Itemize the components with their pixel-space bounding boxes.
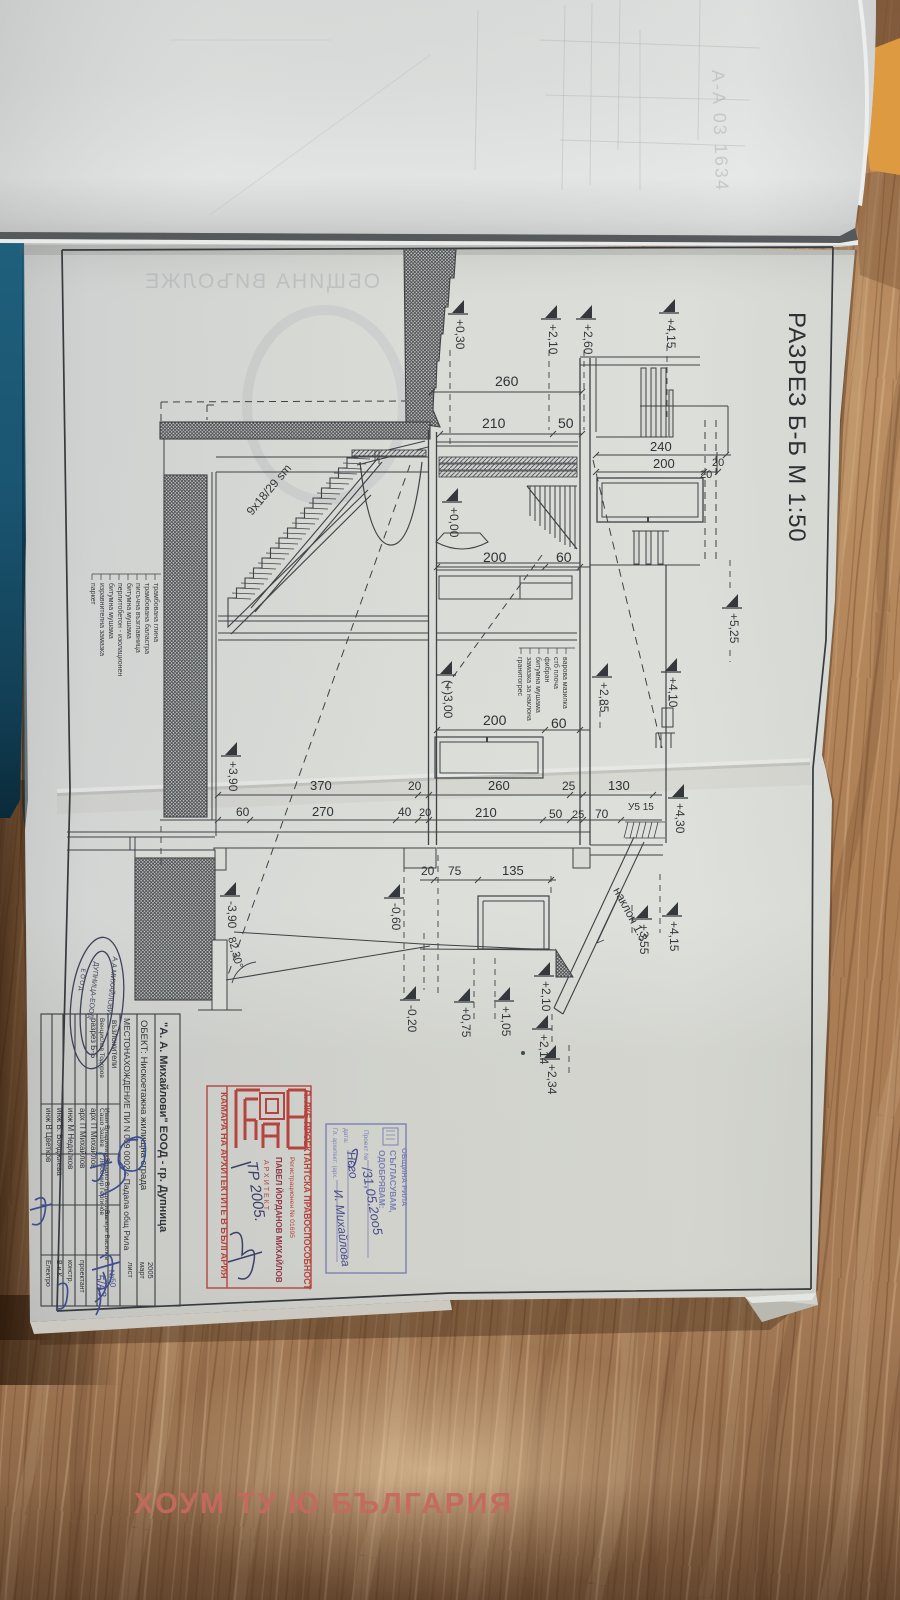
svg-text:Нєго: Нєго (344, 1151, 361, 1180)
svg-text:№50: №50 (107, 1269, 118, 1288)
svg-text:+2,14: +2,14 (537, 1034, 551, 1065)
svg-text:+2,34: +2,34 (545, 1064, 559, 1095)
svg-text:210: 210 (475, 805, 497, 820)
svg-text:+2,10: +2,10 (539, 981, 553, 1012)
svg-text:+2,10: +2,10 (546, 324, 560, 355)
svg-text:А-А 03 1634: А-А 03 1634 (708, 69, 732, 192)
svg-text:ОБЩИНА РИЛА: ОБЩИНА РИЛА (400, 1148, 409, 1207)
svg-text:50: 50 (549, 807, 563, 821)
svg-text:210: 210 (482, 415, 506, 431)
svg-text:лист: лист (126, 1262, 135, 1278)
svg-text:СЪГЛАСУВАМ,: СЪГЛАСУВАМ, (388, 1150, 398, 1213)
svg-text:20: 20 (408, 779, 422, 793)
svg-text:Електро: Електро (44, 1260, 51, 1287)
svg-text:писъчна възглавница: писъчна възглавница (134, 583, 141, 653)
svg-text:"А. А. Михайлови" ЕООД - гр. Д: "А. А. Михайлови" ЕООД - гр. Дупница (157, 1022, 169, 1233)
svg-text:+0,75: +0,75 (459, 1007, 473, 1038)
svg-text:РАЗРЕЗ Б-Б М 1:50: РАЗРЕЗ Б-Б М 1:50 (783, 312, 810, 542)
svg-text:ОБЩИНА ВИЪОЛЖЕ: ОБЩИНА ВИЪОЛЖЕ (143, 270, 380, 293)
svg-text:У5 15: У5 15 (628, 802, 654, 813)
svg-text:50: 50 (558, 415, 574, 431)
svg-text:перлитобетон - изолационен: перлитобетон - изолационен (116, 583, 124, 676)
svg-text:200: 200 (483, 712, 507, 728)
svg-text:гранитогрес: гранитогрес (516, 657, 523, 696)
svg-text:замазка за наклона: замазка за наклона (525, 657, 532, 721)
svg-text:МЕСТОНАХОЖДЕНИЕ ПИ N 009 000: МЕСТОНАХОЖДЕНИЕ ПИ N 009 0002 с Падала о… (122, 1018, 132, 1251)
svg-text:2005: 2005 (146, 1262, 155, 1279)
svg-text:+0,30: +0,30 (453, 319, 467, 350)
svg-text:+5,25: +5,25 (727, 613, 741, 644)
svg-text:130: 130 (608, 778, 630, 793)
svg-text:-0,20: -0,20 (405, 1005, 419, 1033)
svg-text:ПАВЕЛ ЙОРДАНОВ МИХАЙЛОВ: ПАВЕЛ ЙОРДАНОВ МИХАЙЛОВ (274, 1157, 283, 1283)
svg-text:20: 20 (712, 457, 724, 469)
svg-text:+2,60: +2,60 (581, 324, 595, 355)
svg-text:135: 135 (502, 863, 524, 878)
svg-text:25: 25 (562, 779, 576, 793)
svg-text:+4,15: +4,15 (664, 318, 678, 349)
svg-text:+2,85: +2,85 (597, 682, 611, 713)
svg-text:200: 200 (653, 456, 675, 471)
svg-text:+3,90: +3,90 (226, 761, 240, 792)
svg-text:арх П Михайлов: арх П Михайлов (78, 1108, 87, 1168)
svg-text:20: 20 (419, 807, 431, 819)
svg-text:трамбована глина: трамбована глина (152, 583, 160, 642)
svg-text:Проект №: Проект № (362, 1130, 369, 1160)
svg-text:Валери Василев: Валери Василев (103, 1210, 110, 1261)
svg-text:изравнителна замазка: изравнителна замазка (98, 583, 105, 656)
svg-text:40: 40 (398, 805, 412, 819)
svg-text:стб плоча: стб плоча (552, 657, 560, 689)
svg-text:битумна мушама: битумна мушама (534, 657, 542, 713)
svg-text:Гл. архитект: (арх.: Гл. архитект: (арх. (331, 1128, 337, 1179)
svg-text:Регистрационен № 01695: Регистрационен № 01695 (288, 1157, 295, 1238)
svg-text:+4,10: +4,10 (666, 677, 680, 708)
svg-text:25: 25 (572, 809, 584, 821)
svg-text:(+)3,00: (+)3,00 (441, 680, 455, 719)
svg-text:60: 60 (236, 805, 250, 819)
svg-text:дата:: дата: (342, 1128, 349, 1144)
svg-text:инж М Недялков: инж М Недялков (66, 1108, 75, 1169)
svg-text:20: 20 (421, 864, 435, 878)
svg-text:240: 240 (650, 439, 672, 454)
svg-text:370: 370 (310, 778, 332, 793)
svg-text:трамбована баластра: трамбована баластра (143, 583, 151, 654)
svg-text:фибран: фибран (543, 657, 551, 682)
svg-text:75: 75 (448, 864, 462, 878)
svg-text:проектант: проектант (78, 1260, 85, 1293)
svg-text:+4,30: +4,30 (673, 803, 687, 834)
svg-text:ОБЕКТ: Нискоетажна жилищна сгр: ОБЕКТ: Нискоетажна жилищна сграда (138, 1020, 149, 1191)
svg-text:възложители: възложители (110, 1020, 119, 1068)
svg-text:70: 70 (595, 807, 609, 821)
svg-text:битумна мушама: битумна мушама (107, 583, 115, 639)
svg-text:констр.: констр. (66, 1260, 73, 1283)
svg-text:60: 60 (551, 715, 567, 731)
svg-text:60: 60 (556, 549, 572, 565)
svg-text:200: 200 (483, 549, 507, 565)
svg-text:+0,00: +0,00 (447, 507, 461, 538)
svg-text:битумна мушама: битумна мушама (125, 583, 133, 639)
svg-text:270: 270 (312, 804, 334, 819)
svg-text:инж Б. Бояджиева: инж Б. Бояджиева (55, 1108, 64, 1176)
svg-text:20: 20 (700, 469, 712, 481)
svg-text:+1,05: +1,05 (499, 1006, 513, 1037)
svg-text:260: 260 (495, 373, 519, 389)
svg-text:+3,55: +3,55 (637, 924, 651, 955)
svg-text:паркет: паркет (89, 583, 96, 605)
svg-text:В и К: В и К (55, 1260, 62, 1277)
svg-text:Венцислав Тодоров: Венцислав Тодоров (98, 1018, 105, 1078)
svg-text:-0,60: -0,60 (389, 903, 403, 931)
svg-text:-3,90: -3,90 (225, 901, 239, 929)
svg-text:ХОУМ ТУ Ю БЪЛГАРИЯ: ХОУМ ТУ Ю БЪЛГАРИЯ (134, 1488, 513, 1520)
svg-text:варова мазилка: варова мазилка (561, 657, 568, 709)
svg-text:март: март (138, 1262, 147, 1279)
svg-text:арх П Михайлов: арх П Михайлов (89, 1108, 98, 1168)
svg-text:260: 260 (488, 778, 510, 793)
svg-text:+4,15: +4,15 (667, 921, 681, 952)
svg-text:КАМАРА НА АРХИТЕКТИТЕ В БЪЛГАР: КАМАРА НА АРХИТЕКТИТЕ В БЪЛГАРИЯ (219, 1092, 229, 1279)
svg-text:инж В Цветков: инж В Цветков (44, 1108, 53, 1162)
